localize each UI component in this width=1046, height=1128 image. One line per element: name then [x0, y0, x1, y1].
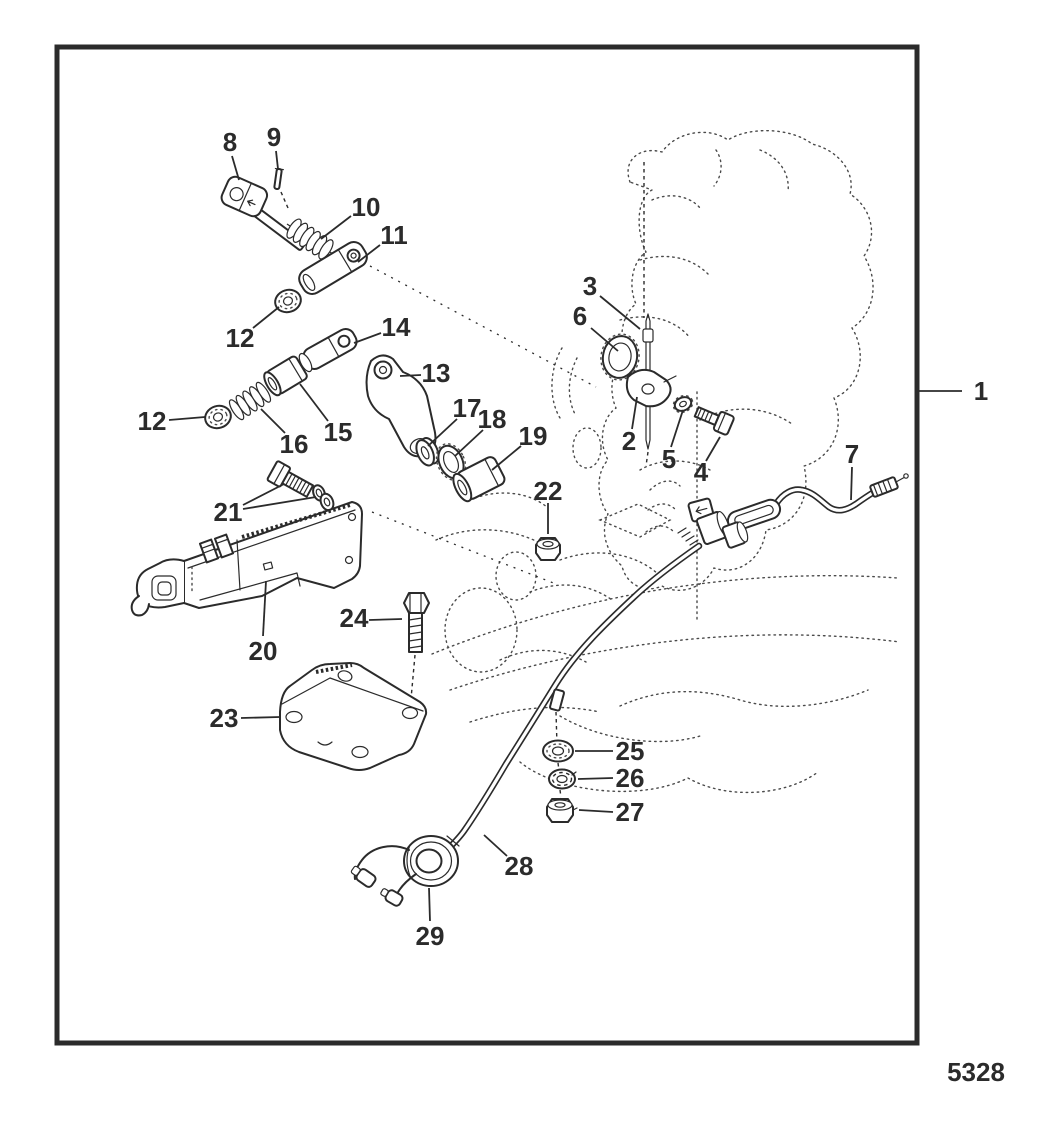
- callout-27-leader: [579, 810, 613, 812]
- callout-22: 22: [534, 476, 563, 506]
- cable-end-fitting: [870, 477, 899, 498]
- callout-14: 14: [382, 312, 411, 342]
- callout-13: 13: [422, 358, 451, 388]
- callout-19: 19: [519, 421, 548, 451]
- part-20-bracket: [132, 502, 362, 615]
- diagram-border: [57, 47, 917, 1043]
- part-4-bolt: [693, 403, 735, 436]
- callout-12: 12: [138, 406, 167, 436]
- callout-15-leader: [300, 384, 328, 421]
- callout-29-leader: [429, 888, 430, 921]
- callout-24: 24: [340, 603, 369, 633]
- callout-23-leader: [241, 717, 280, 718]
- part-27-nut: [547, 799, 577, 822]
- part-12-washer-2: [202, 403, 234, 432]
- callout-28: 28: [505, 851, 534, 881]
- bracket-hook: [132, 559, 184, 615]
- callout-12-leader: [253, 307, 279, 328]
- part-23-plate: [280, 663, 426, 770]
- callout-11: 11: [380, 220, 408, 250]
- callout-18: 18: [478, 404, 507, 434]
- callout-12-leader: [169, 417, 205, 420]
- callout-7: 7: [845, 439, 859, 469]
- callout-26-leader: [578, 778, 613, 779]
- callout-27: 27: [616, 797, 645, 827]
- callout-9-leader: [276, 151, 278, 169]
- figure-number: 5328: [947, 1057, 1005, 1087]
- callout-7-leader: [851, 467, 852, 500]
- callout-2-leader: [632, 397, 637, 429]
- callout-6: 6: [573, 301, 587, 331]
- part-14-link: [296, 326, 360, 375]
- callout-25: 25: [616, 736, 645, 766]
- callout-9: 9: [267, 122, 281, 152]
- callout-21-leader: [243, 484, 284, 505]
- callout-3: 3: [583, 271, 597, 301]
- part-12-washer: [272, 287, 304, 316]
- part-9-pin: [273, 169, 284, 190]
- part-2-cam: [627, 370, 676, 406]
- callout-19-leader: [492, 446, 521, 470]
- callout-5: 5: [662, 444, 676, 474]
- callout-26: 26: [616, 763, 645, 793]
- harness-grommet: [404, 836, 458, 886]
- part-21-bolt: [267, 461, 315, 501]
- callout-15: 15: [324, 417, 353, 447]
- callout-16: 16: [280, 429, 309, 459]
- callout-29: 29: [416, 921, 445, 951]
- part-22-nut: [536, 538, 560, 560]
- parts-diagram: 1234567891011121213141516171819202122232…: [0, 0, 1046, 1128]
- callout-12: 12: [226, 323, 255, 353]
- callout-8: 8: [223, 127, 237, 157]
- callout-20: 20: [249, 636, 278, 666]
- callout-3-leader: [600, 296, 640, 329]
- mount-hardware: [543, 741, 577, 823]
- part-25-washer: [543, 741, 573, 762]
- callout-23: 23: [210, 703, 239, 733]
- part-26-lock-washer: [549, 770, 576, 789]
- callout-4: 4: [694, 457, 709, 487]
- callout-14-leader: [354, 333, 381, 343]
- callout-21: 21: [214, 497, 243, 527]
- carb-parts: [597, 314, 734, 449]
- throttle-cable-artwork: [349, 474, 908, 907]
- callout-13-leader: [400, 375, 421, 376]
- callout-5-leader: [671, 410, 683, 447]
- callout-2: 2: [622, 426, 636, 456]
- callout-1: 1: [974, 376, 988, 406]
- callout-10-leader: [321, 216, 351, 239]
- callout-24-leader: [369, 619, 402, 620]
- part-24-bolt: [404, 593, 429, 652]
- bullet-terminal: [349, 863, 377, 888]
- callout-10: 10: [352, 192, 381, 222]
